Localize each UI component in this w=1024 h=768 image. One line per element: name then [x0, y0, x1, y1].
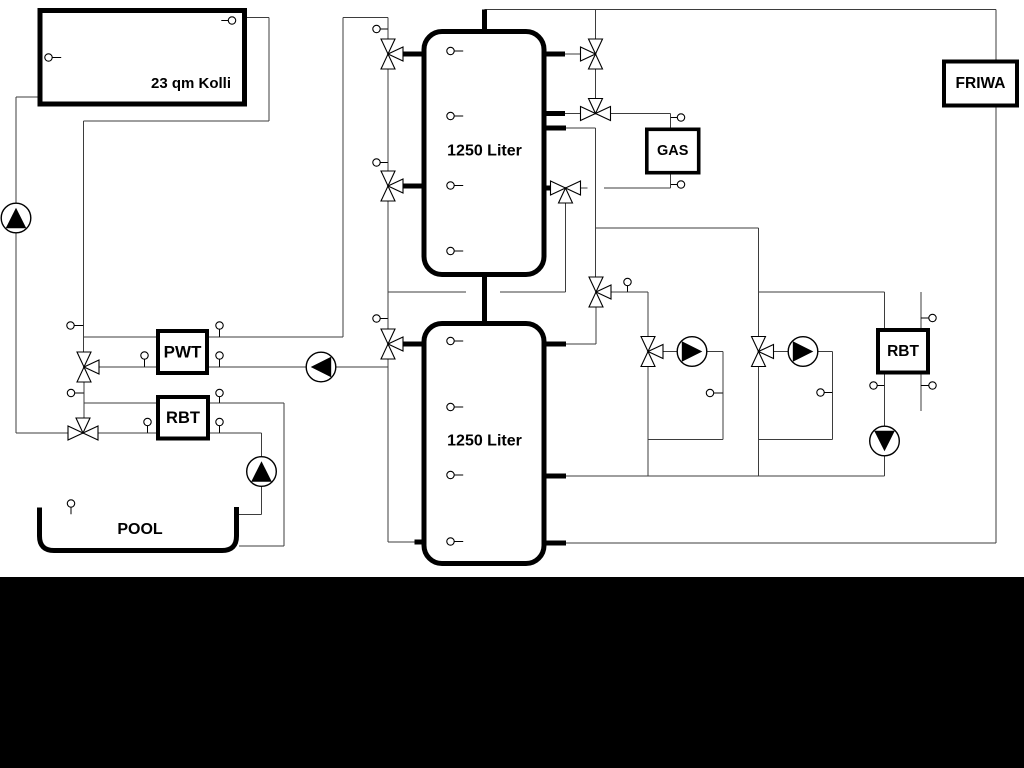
svg-text:RBT: RBT [887, 343, 919, 360]
svg-text:GAS: GAS [657, 143, 689, 159]
svg-text:POOL: POOL [117, 521, 163, 538]
svg-text:RBT: RBT [166, 409, 200, 427]
svg-text:PWT: PWT [164, 343, 202, 362]
svg-text:23 qm Kolli: 23 qm Kolli [151, 75, 231, 92]
svg-text:1250 Liter: 1250 Liter [447, 143, 522, 160]
svg-text:1250 Liter: 1250 Liter [447, 433, 522, 450]
svg-text:FRIWA: FRIWA [956, 75, 1006, 92]
